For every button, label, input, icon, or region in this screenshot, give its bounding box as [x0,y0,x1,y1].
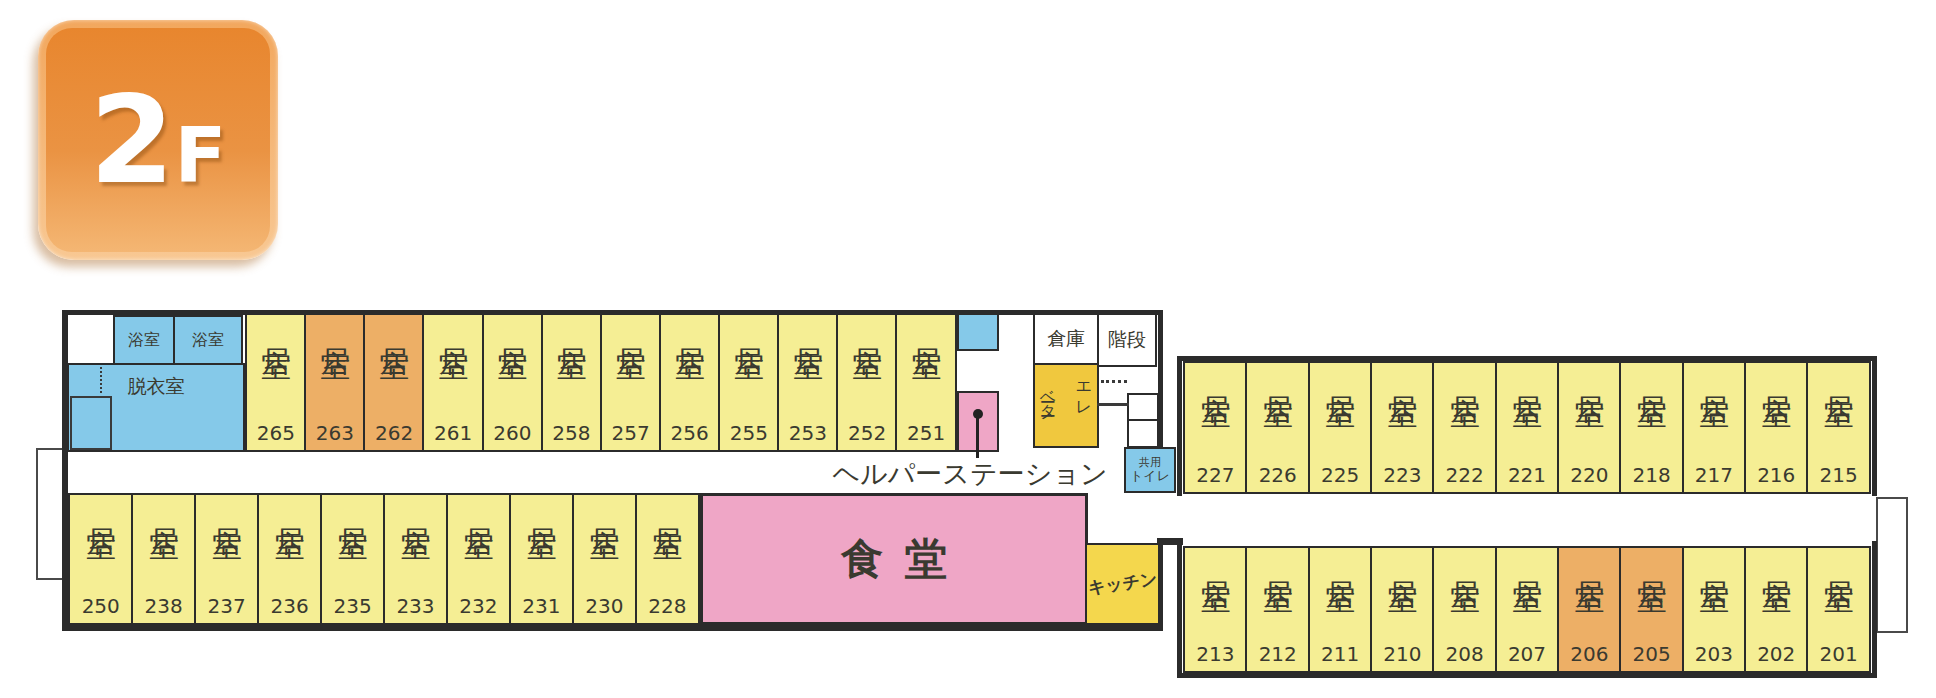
room-type-label: 居室 [1818,557,1859,559]
room-type-label: 居室 [551,324,592,326]
room-number: 201 [1819,642,1857,666]
storage-label: 倉庫 [1047,329,1085,349]
room-type-label: 居室 [1195,372,1236,374]
room-208: 居室208 [1432,546,1497,673]
bathroom-1: 浴室 [113,315,175,365]
room-number: 217 [1695,463,1733,487]
floor-number: 2 [90,79,175,201]
right-annex [1876,497,1908,633]
room-227: 居室227 [1183,361,1248,494]
room-type-label: 居室 [269,504,310,506]
room-233: 居室233 [383,493,448,625]
room-type-label: 居室 [1693,372,1734,374]
room-number: 216 [1757,463,1795,487]
bottom-right-room-row: 居室213居室212居室211居室210居室208居室207居室206居室205… [1183,546,1871,673]
room-number: 207 [1508,642,1546,666]
room-226: 居室226 [1245,361,1310,494]
room-265: 居室265 [245,313,307,452]
room-type-label: 居室 [728,324,769,326]
bottom-left-room-row: 居室250居室238居室237居室236居室235居室233居室232居室231… [68,493,700,625]
room-202: 居室202 [1744,546,1809,673]
room-type-label: 居室 [1631,372,1672,374]
dressing-room-partition [70,396,112,450]
room-number: 210 [1383,642,1421,666]
room-238: 居室238 [131,493,196,625]
room-number: 251 [907,421,945,445]
room-number: 253 [789,421,827,445]
room-type-label: 居室 [1569,557,1610,559]
top-right-room-row: 居室227居室226居室225居室223居室222居室221居室220居室218… [1183,361,1871,494]
bathroom-1-label: 浴室 [128,332,160,349]
room-215: 居室215 [1806,361,1871,494]
room-number: 233 [396,594,434,618]
room-number: 228 [648,594,686,618]
wing-connector-border [1157,538,1183,545]
room-type-label: 居室 [1382,557,1423,559]
room-255: 居室255 [718,313,780,452]
room-211: 居室211 [1308,546,1373,673]
room-225: 居室225 [1308,361,1373,494]
room-number: 215 [1819,463,1857,487]
room-type-label: 居室 [787,324,828,326]
helper-station-pointer [976,414,979,458]
room-type-label: 居室 [80,504,121,506]
room-type-label: 居室 [1320,557,1361,559]
room-number: 235 [333,594,371,618]
room-number: 208 [1446,642,1484,666]
room-type-label: 居室 [847,324,888,326]
room-257: 居室257 [600,313,662,452]
room-221: 居室221 [1495,361,1560,494]
room-number: 237 [208,594,246,618]
room-205: 居室205 [1619,546,1684,673]
room-number: 257 [611,421,649,445]
room-number: 255 [730,421,768,445]
room-232: 居室232 [446,493,511,625]
elevator-cell: エレ ベーター [1033,363,1099,448]
room-type-label: 居室 [1756,557,1797,559]
room-type-label: 居室 [206,504,247,506]
room-236: 居室236 [257,493,322,625]
room-228: 居室228 [635,493,700,625]
room-type-label: 居室 [610,324,651,326]
stairs-label: 階段 [1108,330,1146,350]
dressing-room-dotted-line [100,367,102,393]
dining-hall-label: 食堂 [819,537,969,581]
room-262: 居室262 [363,313,425,452]
stair-flight-lower [1127,419,1159,448]
room-number: 205 [1633,642,1671,666]
room-220: 居室220 [1557,361,1622,494]
floor-badge-label: 2F [90,79,227,201]
room-number: 211 [1321,642,1359,666]
room-207: 居室207 [1495,546,1560,673]
room-206: 居室206 [1557,546,1622,673]
stair-flight-upper [1127,393,1159,422]
room-235: 居室235 [320,493,385,625]
stairs-dotted-line [1101,380,1127,383]
room-number: 236 [270,594,308,618]
room-type-label: 居室 [906,324,947,326]
room-type-label: 居室 [492,324,533,326]
stairs-cell: 階段 [1097,313,1157,367]
room-218: 居室218 [1619,361,1684,494]
room-263: 居室263 [304,313,366,452]
room-type-label: 居室 [1444,557,1485,559]
floor-badge: 2F [38,20,278,260]
room-number: 218 [1633,463,1671,487]
room-number: 220 [1570,463,1608,487]
room-number: 260 [493,421,531,445]
room-number: 258 [552,421,590,445]
room-203: 居室203 [1682,546,1747,673]
room-230: 居室230 [572,493,637,625]
room-261: 居室261 [422,313,484,452]
room-number: 221 [1508,463,1546,487]
room-210: 居室210 [1370,546,1435,673]
room-type-label: 居室 [395,504,436,506]
room-type-label: 居室 [647,504,688,506]
room-number: 265 [257,421,295,445]
room-number: 213 [1196,642,1234,666]
room-type-label: 居室 [1756,372,1797,374]
room-212: 居室212 [1245,546,1310,673]
room-type-label: 居室 [1320,372,1361,374]
room-216: 居室216 [1744,361,1809,494]
room-number: 212 [1259,642,1297,666]
floor-suffix: F [174,118,226,194]
room-type-label: 居室 [584,504,625,506]
bathroom-2: 浴室 [173,315,243,365]
room-number: 230 [585,594,623,618]
elevator-label-col2: ベーター [1040,378,1056,406]
room-258: 居室258 [541,313,603,452]
room-number: 262 [375,421,413,445]
room-number: 250 [82,594,120,618]
room-number: 261 [434,421,472,445]
room-number: 238 [145,594,183,618]
room-type-label: 居室 [521,504,562,506]
room-231: 居室231 [509,493,574,625]
room-number: 222 [1446,463,1484,487]
room-250: 居室250 [68,493,133,625]
floor-plan-canvas: 2F 浴室 浴室 脱衣室 居室265居室263居室262居室261居室260居室… [0,0,1936,698]
room-201: 居室201 [1806,546,1871,673]
floor-badge-face: 2F [46,28,270,252]
dining-hall: 食堂 [700,493,1088,625]
room-213: 居室213 [1183,546,1248,673]
room-number: 203 [1695,642,1733,666]
room-number: 227 [1196,463,1234,487]
room-type-label: 居室 [1693,557,1734,559]
room-number: 263 [316,421,354,445]
dressing-room-label: 脱衣室 [128,377,185,397]
room-type-label: 居室 [1444,372,1485,374]
room-type-label: 居室 [1506,372,1547,374]
room-type-label: 居室 [1818,372,1859,374]
room-number: 256 [671,421,709,445]
room-type-label: 居室 [433,324,474,326]
room-number: 206 [1570,642,1608,666]
stairs-divider-line [1097,403,1129,406]
room-number: 232 [459,594,497,618]
room-type-label: 居室 [1631,557,1672,559]
room-type-label: 居室 [1257,557,1298,559]
room-number: 226 [1259,463,1297,487]
room-type-label: 居室 [458,504,499,506]
left-wing-bottom-border [62,625,1163,631]
room-260: 居室260 [482,313,544,452]
top-left-room-row: 居室265居室263居室262居室261居室260居室258居室257居室256… [245,313,957,452]
room-type-label: 居室 [143,504,184,506]
room-237: 居室237 [194,493,259,625]
room-type-label: 居室 [1257,372,1298,374]
kitchen-cell: キッチン [1085,543,1160,625]
room-number: 202 [1757,642,1795,666]
room-number: 223 [1383,463,1421,487]
room-217: 居室217 [1682,361,1747,494]
room-type-label: 居室 [1569,372,1610,374]
helper-station-label: ヘルパーステーション [800,456,1140,492]
room-type-label: 居室 [374,324,415,326]
room-252: 居室252 [836,313,898,452]
room-number: 252 [848,421,886,445]
room-number: 231 [522,594,560,618]
room-number: 225 [1321,463,1359,487]
room-type-label: 居室 [1195,557,1236,559]
room-type-label: 居室 [255,324,296,326]
room-223: 居室223 [1370,361,1435,494]
room-253: 居室253 [777,313,839,452]
helper-station-blue-cell [957,313,999,351]
room-256: 居室256 [659,313,721,452]
room-222: 居室222 [1432,361,1497,494]
room-type-label: 居室 [669,324,710,326]
room-type-label: 居室 [314,324,355,326]
kitchen-label: キッチン [1087,570,1158,597]
room-251: 居室251 [895,313,957,452]
elevator-label-col1: エレ [1076,372,1092,408]
storage-cell: 倉庫 [1033,313,1099,365]
room-type-label: 居室 [332,504,373,506]
bathroom-2-label: 浴室 [192,332,224,349]
room-type-label: 居室 [1382,372,1423,374]
room-type-label: 居室 [1506,557,1547,559]
